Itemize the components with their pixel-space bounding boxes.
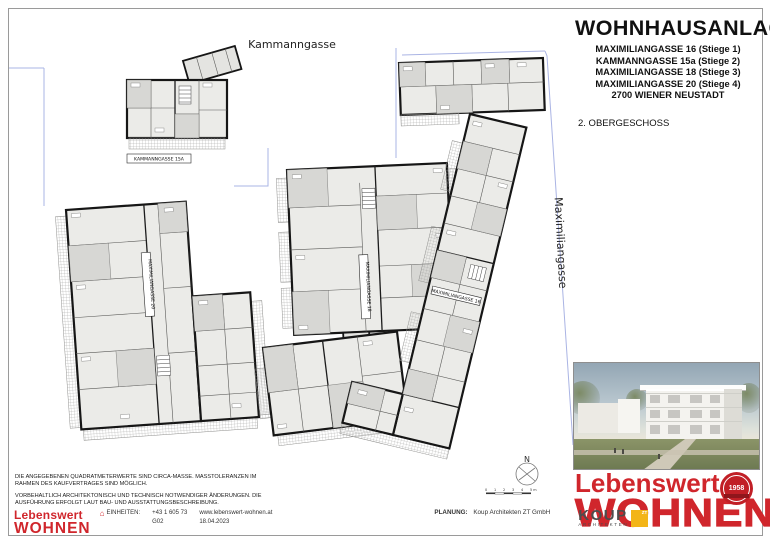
- staircase-icon: [156, 355, 170, 376]
- street-label-maximiliangasse: Maximiliangasse: [552, 197, 570, 289]
- disclaimer-para2: VORBEHALTLICH ARCHITEKTONISCH UND TECHNI…: [15, 493, 271, 507]
- footer-bar: Lebenswert WOHNEN ⌂ EINHEITEN: +43 1 605…: [14, 509, 756, 537]
- floor-label: 2. OBERGESCHOSS: [578, 118, 761, 129]
- koup-architects-logo: KOUP ARCHITEKTEN ZT: [578, 509, 648, 527]
- address-line-4: MAXIMILIANGASSE 20 (Stiege 4): [575, 79, 761, 91]
- city-line: 2700 WIENER NEUSTADT: [575, 90, 761, 102]
- house-icon: ⌂: [100, 511, 105, 517]
- building-stiege2-kammanngasse15a: KAMMANNGASSE 15A: [127, 46, 241, 163]
- footer-brand-logo: Lebenswert WOHNEN: [14, 509, 91, 537]
- unit-code: G02: [152, 518, 187, 527]
- plan-sheet: Kammanngasse Maximiliangasse: [0, 0, 770, 545]
- phone-number: +43 1 605 73: [152, 509, 187, 518]
- footer-web-column: www.lebenswert-wohnen.at 18.04.2023: [199, 509, 272, 527]
- footer-units-column: ⌂ EINHEITEN:: [100, 509, 141, 518]
- footer-brand-line2: WOHNEN: [14, 521, 91, 537]
- building-stiege4-maximiliangasse20: MAXIMILIANGASSE 20: [55, 197, 271, 441]
- project-title: WOHNHAUSANLAGE: [575, 16, 761, 41]
- scale-tick: 0: [485, 488, 487, 492]
- north-arrow: N: [516, 455, 538, 485]
- address-label-stiege2: KAMMANNGASSE 15A: [134, 157, 185, 163]
- planung-value: Koup Architekten ZT GmbH: [473, 509, 550, 516]
- seal-year: 1958: [729, 485, 745, 492]
- staircase-icon: [362, 188, 376, 209]
- disclaimer-para1: DIE ANGEGEBENEN QUADRATMETERWERTE SIND C…: [15, 474, 271, 488]
- koup-square-mark: ZT: [642, 510, 648, 515]
- plan-date: 18.04.2023: [199, 518, 272, 527]
- scale-bar: 0 1 2 3 4 5 m: [485, 488, 537, 494]
- street-label-kammanngasse: Kammanngasse: [248, 38, 336, 51]
- scale-tick: 1: [494, 488, 496, 492]
- koup-square-icon: ZT: [631, 510, 648, 527]
- koup-subtitle: ARCHITEKTEN: [578, 522, 628, 527]
- address-line-3: MAXIMILIANGASSE 18 (Stiege 3): [575, 67, 761, 79]
- anniversary-seal-icon: 1958: [720, 472, 753, 505]
- footer-phone-column: +43 1 605 73 G02: [152, 509, 187, 527]
- footer-planning-credit: PLANUNG: Koup Architekten ZT GmbH: [434, 509, 550, 516]
- address-line-1: MAXIMILIANGASSE 16 (Stiege 1): [575, 44, 761, 56]
- scale-tick: 3: [512, 488, 514, 492]
- disclaimer-text: DIE ANGEGEBENEN QUADRATMETERWERTE SIND C…: [15, 474, 271, 512]
- address-line-2: KAMMANNGASSE 15a (Stiege 2): [575, 56, 761, 68]
- koup-name: KOUP: [578, 509, 628, 522]
- building-rendering-photo: [573, 362, 760, 470]
- staircase-icon: [179, 86, 191, 104]
- scale-tick: 2: [503, 488, 505, 492]
- website-link[interactable]: www.lebenswert-wohnen.at: [199, 509, 272, 518]
- planung-label: PLANUNG:: [434, 509, 467, 516]
- units-label: EINHEITEN:: [106, 509, 140, 518]
- scale-tick: 5 m: [530, 488, 537, 492]
- title-block: WOHNHAUSANLAGE MAXIMILIANGASSE 16 (Stieg…: [575, 16, 761, 129]
- scale-tick: 4: [521, 488, 523, 492]
